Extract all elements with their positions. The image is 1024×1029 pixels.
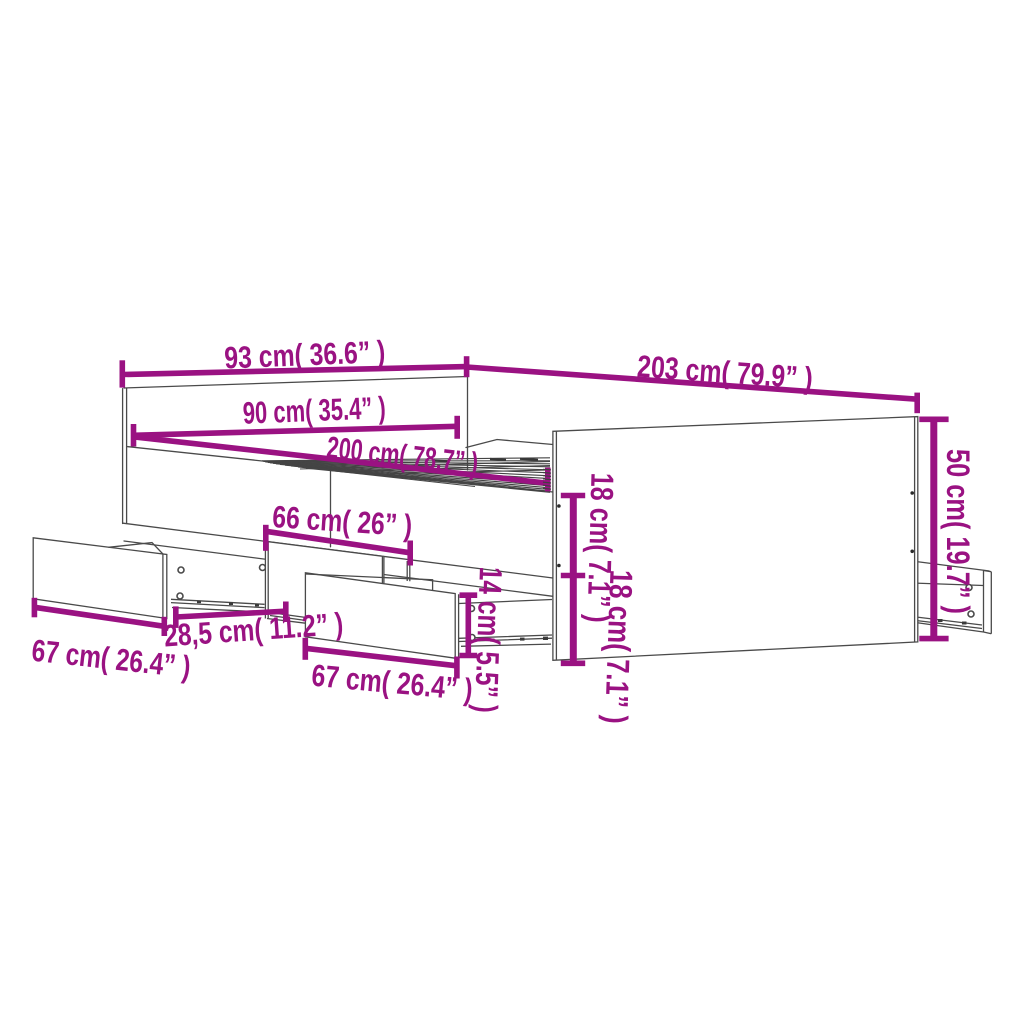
svg-text:93 cm( 36.6” ): 93 cm( 36.6” )	[224, 334, 386, 375]
svg-text:50 cm( 19.7” ): 50 cm( 19.7” )	[940, 449, 976, 614]
svg-text:90 cm( 35.4” ): 90 cm( 35.4” )	[242, 390, 386, 431]
svg-text:18 cm( 7.1” ): 18 cm( 7.1” )	[598, 569, 639, 724]
svg-text:14 cm( 5.5” ): 14 cm( 5.5” )	[468, 566, 509, 713]
